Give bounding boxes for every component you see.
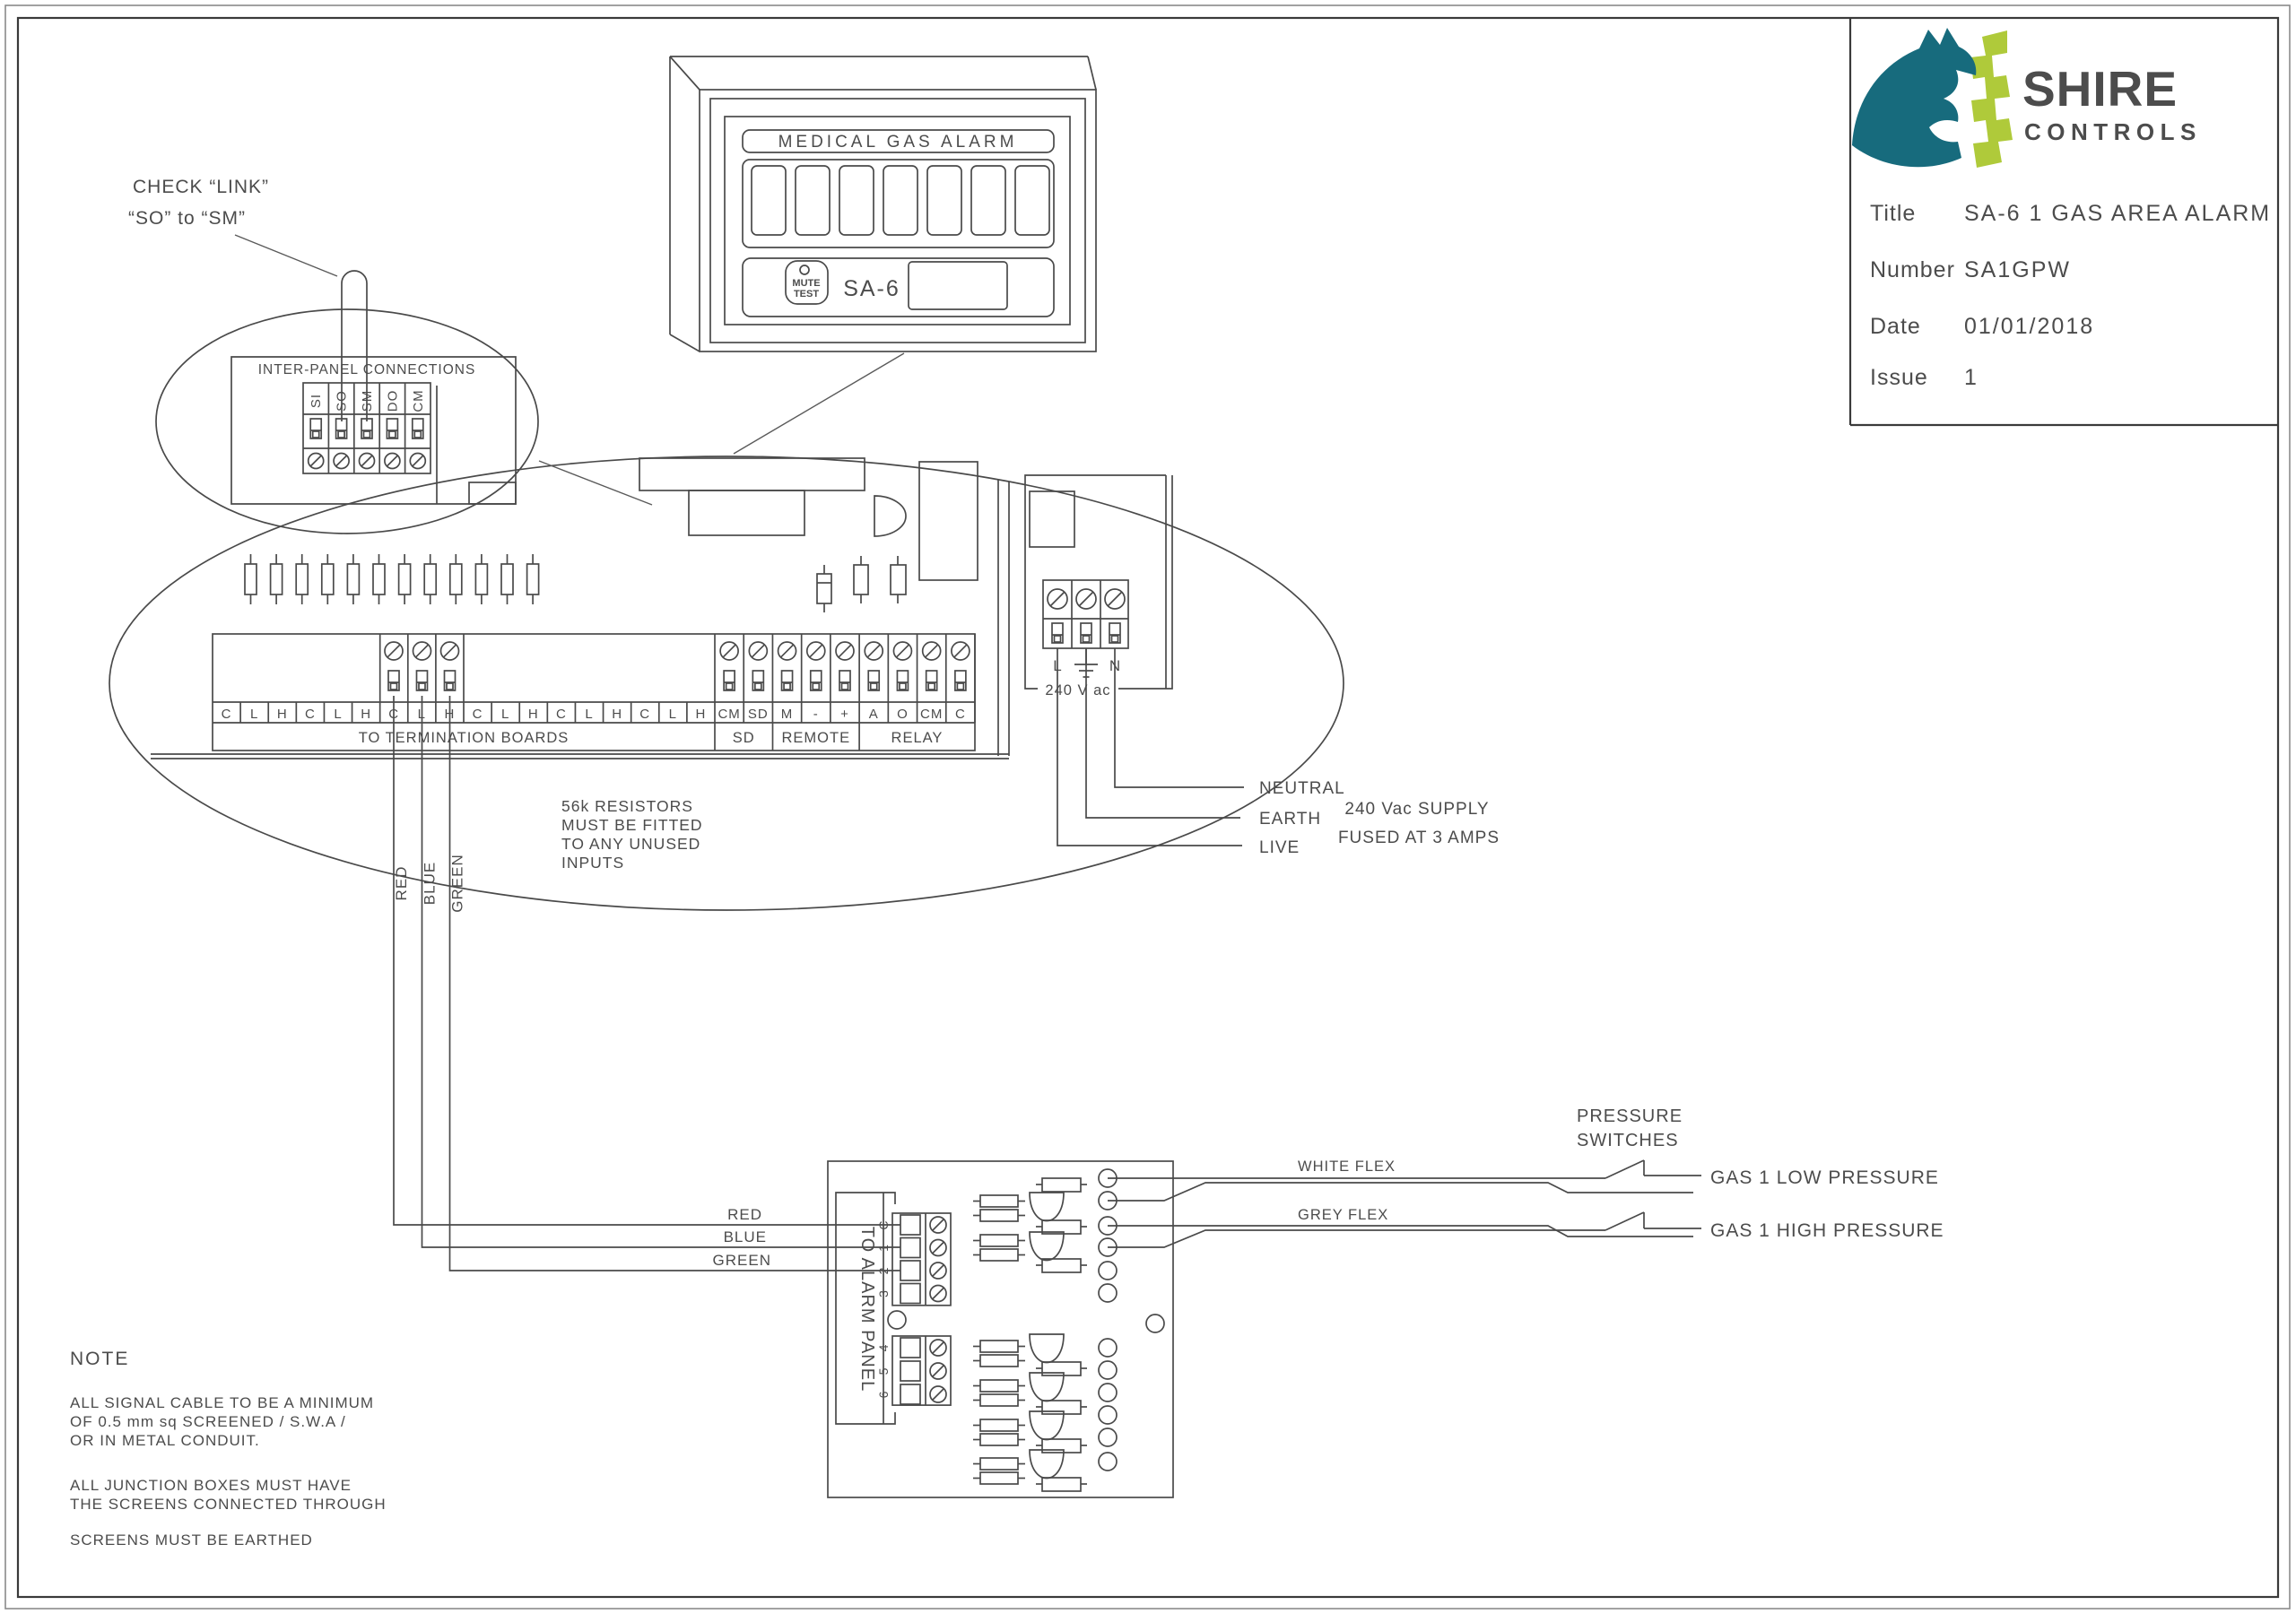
row-value-issue: 1 <box>1964 365 1979 390</box>
note-heading: NOTE <box>70 1349 129 1369</box>
note-block: NOTE ALL SIGNAL CABLE TO BE A MINIMUM OF… <box>70 1349 387 1549</box>
incoming-wire-labels: RED BLUE GREEN <box>713 1206 771 1269</box>
junction-box: TO ALARM PANEL C123456 RED BLUE GREEN <box>713 1161 1173 1497</box>
termination-cell-label: C <box>305 707 316 722</box>
junction-terminal-label: 1 <box>876 1244 891 1252</box>
gas-low-label: GAS 1 LOW PRESSURE <box>1710 1167 1939 1188</box>
io-cell-label: CM <box>920 707 943 722</box>
power-terminals <box>1048 580 1125 648</box>
brand-primary: SHIRE <box>2022 61 2178 117</box>
live-label: LIVE <box>1259 838 1300 857</box>
sheet-border <box>5 5 2290 1609</box>
row-label-issue: Issue <box>1870 365 1928 390</box>
mute-label: MUTE <box>792 278 820 289</box>
logo-horse-shape <box>1852 28 1976 167</box>
grey-flex-label: GREY FLEX <box>1298 1207 1388 1223</box>
svg-text:BLUE: BLUE <box>724 1228 767 1245</box>
resistor-note: 56k RESISTORS MUST BE FITTED TO ANY UNUS… <box>561 797 703 872</box>
svg-text:THE SCREENS CONNECTED THROUGH: THE SCREENS CONNECTED THROUGH <box>70 1496 387 1513</box>
row-label-number: Number <box>1870 257 1955 282</box>
termination-group-label: TO TERMINATION BOARDS <box>359 730 570 746</box>
io-cell-label: - <box>813 707 819 722</box>
io-cell-label: + <box>840 707 849 722</box>
junction-terminal-label: 3 <box>876 1289 891 1297</box>
termination-cell-label: L <box>501 707 509 722</box>
supply-note-1: 240 Vac SUPPLY <box>1344 800 1489 819</box>
fuse-icon <box>817 565 831 612</box>
supply-wires <box>1057 648 1244 846</box>
io-cell-label: CM <box>717 707 740 722</box>
schematic-sheet: SHIRE CONTROLS Title SA-6 1 GAS AREA ALA… <box>0 0 2296 1614</box>
brand-secondary: CONTROLS <box>2024 118 2202 145</box>
schematic-canvas: SHIRE CONTROLS Title SA-6 1 GAS AREA ALA… <box>0 0 2296 1614</box>
wire-label-blue-v: BLUE <box>422 862 439 905</box>
svg-text:MUST BE FITTED: MUST BE FITTED <box>561 816 703 834</box>
interpanel-callout: CHECK “LINK” “SO” to “SM” INTER-PANEL CO… <box>128 177 538 534</box>
check-link-note-2: “SO” to “SM” <box>128 208 246 229</box>
mute-test-button: MUTE TEST <box>786 261 828 304</box>
junction-terminal-label: 5 <box>876 1367 891 1375</box>
termination-cell-label: H <box>696 707 707 722</box>
row-value-number: SA1GPW <box>1964 257 2071 282</box>
capacitor-icons <box>854 556 906 603</box>
logo-gear-shape <box>1970 30 2013 168</box>
io-cell-label: SD <box>748 707 769 722</box>
junction-terminal-label: 2 <box>876 1267 891 1275</box>
earth-label: EARTH <box>1259 810 1321 829</box>
test-label: TEST <box>794 289 819 299</box>
switch-heading-1: PRESSURE <box>1577 1106 1683 1126</box>
interpanel-terminal-label: DO <box>385 390 400 412</box>
title-block: SHIRE CONTROLS Title SA-6 1 GAS AREA ALA… <box>1850 18 2278 425</box>
svg-text:OF 0.5 mm sq SCREENED / S.W.A: OF 0.5 mm sq SCREENED / S.W.A / <box>70 1413 346 1430</box>
svg-text:OR IN METAL CONDUIT.: OR IN METAL CONDUIT. <box>70 1432 260 1449</box>
svg-text:ALL SIGNAL CABLE TO BE A MINIM: ALL SIGNAL CABLE TO BE A MINIMUM <box>70 1394 374 1411</box>
row-label-title: Title <box>1870 201 1916 226</box>
check-link-leader <box>235 235 337 276</box>
interpanel-leader <box>539 461 652 505</box>
alarm-panel-drawing: MEDICAL GAS ALARM MUTE TEST SA-6 <box>670 56 1096 454</box>
interpanel-terminal-label: SI <box>309 394 324 408</box>
brand-logo: SHIRE CONTROLS <box>1852 28 2202 168</box>
io-cell-label: O <box>897 707 909 722</box>
voltage-label: 240 V ac <box>1045 682 1110 699</box>
svg-text:ALL JUNCTION BOXES MUST HAVE: ALL JUNCTION BOXES MUST HAVE <box>70 1477 352 1494</box>
junction-pads <box>1099 1169 1117 1471</box>
wire-label-green-v: GREEN <box>449 854 466 912</box>
termination-cell-label: H <box>612 707 622 722</box>
io-group-label: REMOTE <box>782 730 851 746</box>
white-flex-label: WHITE FLEX <box>1298 1158 1396 1175</box>
termination-cell-label: C <box>473 707 483 722</box>
panel-callout-leader <box>734 353 904 454</box>
svg-text:INPUTS: INPUTS <box>561 854 624 872</box>
termination-cell-label: L <box>334 707 342 722</box>
termination-cell-label: C <box>222 707 232 722</box>
termination-cell-label: L <box>585 707 593 722</box>
check-link-note-1: CHECK “LINK” <box>133 177 269 197</box>
buzzer-icon <box>874 496 906 536</box>
main-board-callout: CLHCLHCLHCLHCLHCLHCMSDM-+AOCMCSDREMOTERE… <box>109 456 1344 1271</box>
row-label-date: Date <box>1870 314 1921 339</box>
termination-cell-label: L <box>250 707 258 722</box>
alarm-display-windows <box>752 166 1049 235</box>
svg-text:56k RESISTORS: 56k RESISTORS <box>561 797 693 815</box>
junction-terminal-label: C <box>876 1219 891 1229</box>
switch-low: GAS 1 LOW PRESSURE <box>1605 1160 1939 1188</box>
signal-wires: RED BLUE GREEN <box>393 696 900 1271</box>
svg-text:SCREENS MUST BE EARTHED: SCREENS MUST BE EARTHED <box>70 1532 313 1549</box>
io-cell-label: M <box>781 707 794 722</box>
gas-high-label: GAS 1 HIGH PRESSURE <box>1710 1220 1944 1241</box>
svg-text:TO ANY UNUSED: TO ANY UNUSED <box>561 835 700 853</box>
io-cell-label: C <box>955 707 966 722</box>
junction-box-label: TO ALARM PANEL <box>857 1227 877 1392</box>
main-terminal-strip: CLHCLHCLHCLHCLHCLHCMSDM-+AOCMCSDREMOTERE… <box>213 634 975 751</box>
supply-note-2: FUSED AT 3 AMPS <box>1338 829 1500 847</box>
io-group-label: RELAY <box>891 730 944 746</box>
row-value-title: SA-6 1 GAS AREA ALARM <box>1964 201 2271 226</box>
termination-cell-label: H <box>361 707 371 722</box>
neutral-label: NEUTRAL <box>1259 779 1345 798</box>
junction-terminal-blocks: C123456 <box>876 1213 951 1405</box>
junction-terminal-label: 4 <box>876 1344 891 1352</box>
io-cell-label: A <box>869 707 879 722</box>
switch-heading-2: SWITCHES <box>1577 1131 1679 1150</box>
termination-cell-label: H <box>277 707 288 722</box>
termination-cell-label: H <box>528 707 539 722</box>
io-group-label: SD <box>733 730 755 746</box>
termination-cell-label: C <box>639 707 650 722</box>
alarm-model-label: SA-6 <box>843 276 900 301</box>
interpanel-terminal-label: CM <box>411 389 426 412</box>
title-block-rows: Title SA-6 1 GAS AREA ALARM Number SA1GP… <box>1870 201 2271 390</box>
row-value-date: 01/01/2018 <box>1964 314 2094 339</box>
svg-text:GREEN: GREEN <box>713 1252 771 1269</box>
junction-components <box>973 1178 1087 1491</box>
power-section: L N 240 V ac NEUTRAL EARTH LIVE 240 Vac … <box>1025 475 1500 857</box>
junction-terminal-label: 6 <box>876 1391 891 1399</box>
wire-label-red-v: RED <box>393 866 410 901</box>
termination-cell-label: C <box>556 707 567 722</box>
pressure-switches: PRESSURE SWITCHES GAS 1 LOW PRESSURE GAS… <box>1577 1106 1944 1241</box>
relay-component <box>919 462 978 580</box>
termination-cell-label: L <box>669 707 677 722</box>
svg-text:RED: RED <box>727 1206 762 1223</box>
input-resistors-row <box>245 554 539 604</box>
flex-wiring: WHITE FLEX GREY FLEX <box>1108 1158 1693 1247</box>
alarm-panel-header: MEDICAL GAS ALARM <box>778 133 1018 152</box>
